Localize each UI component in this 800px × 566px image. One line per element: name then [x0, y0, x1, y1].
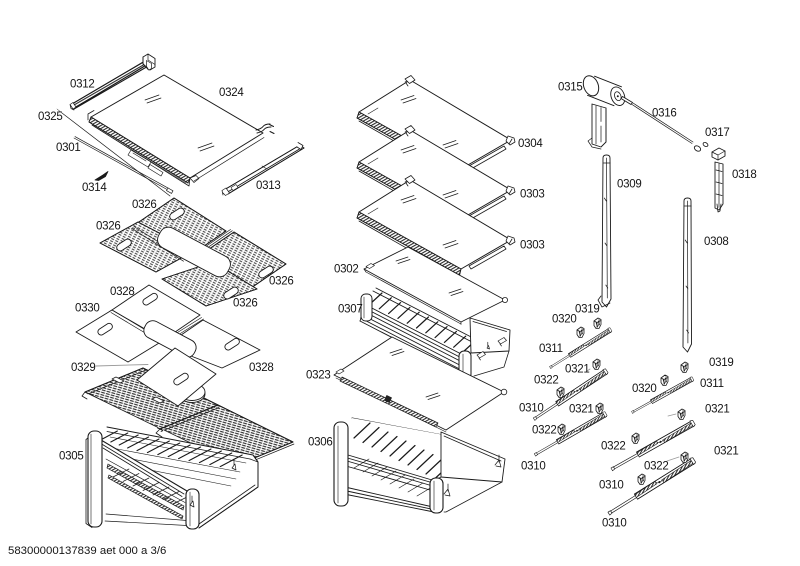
svg-text:0323: 0323	[306, 370, 331, 382]
svg-text:0326: 0326	[96, 221, 121, 233]
svg-text:0319: 0319	[575, 304, 600, 316]
svg-text:0304: 0304	[518, 138, 543, 150]
svg-text:0303: 0303	[520, 189, 545, 201]
svg-text:0326: 0326	[233, 298, 258, 310]
svg-text:0326: 0326	[269, 276, 294, 288]
svg-text:0329: 0329	[71, 362, 96, 374]
svg-text:0328: 0328	[110, 286, 135, 298]
svg-text:0305: 0305	[59, 451, 84, 463]
svg-text:0311: 0311	[700, 378, 724, 390]
svg-text:0322: 0322	[534, 375, 559, 387]
svg-text:0322: 0322	[644, 461, 669, 473]
svg-text:0320: 0320	[632, 383, 657, 395]
svg-text:0326: 0326	[132, 199, 157, 211]
svg-text:0312: 0312	[70, 79, 95, 91]
svg-text:0320: 0320	[552, 314, 577, 326]
svg-text:0310: 0310	[602, 518, 627, 530]
svg-text:0303: 0303	[520, 240, 545, 252]
svg-text:0321: 0321	[705, 404, 730, 416]
svg-text:0314: 0314	[82, 182, 107, 194]
svg-text:0308: 0308	[704, 236, 729, 248]
svg-text:0322: 0322	[601, 441, 626, 453]
svg-text:0325: 0325	[38, 111, 63, 123]
svg-text:58300000137839 aet 000 a 3/6: 58300000137839 aet 000 a 3/6	[8, 545, 166, 557]
svg-text:0319: 0319	[709, 357, 734, 369]
svg-text:0322: 0322	[532, 425, 557, 437]
svg-text:0301: 0301	[56, 142, 81, 154]
svg-text:0315: 0315	[558, 82, 583, 94]
svg-text:0321: 0321	[565, 364, 590, 376]
svg-text:0324: 0324	[219, 87, 244, 99]
svg-text:0310: 0310	[521, 461, 546, 473]
svg-text:0328: 0328	[249, 362, 274, 374]
svg-text:0321: 0321	[569, 404, 594, 416]
svg-text:0311: 0311	[539, 343, 563, 355]
svg-text:0307: 0307	[338, 304, 363, 316]
svg-text:0316: 0316	[652, 108, 677, 120]
svg-text:0309: 0309	[617, 179, 642, 191]
svg-text:0330: 0330	[75, 303, 100, 315]
svg-text:0310: 0310	[519, 403, 544, 415]
svg-text:0313: 0313	[256, 180, 281, 192]
svg-text:0302: 0302	[334, 264, 359, 276]
svg-text:0310: 0310	[599, 480, 624, 492]
svg-text:0306: 0306	[308, 437, 333, 449]
svg-text:0318: 0318	[732, 169, 757, 181]
svg-text:0317: 0317	[705, 127, 730, 139]
svg-text:0321: 0321	[714, 446, 739, 458]
